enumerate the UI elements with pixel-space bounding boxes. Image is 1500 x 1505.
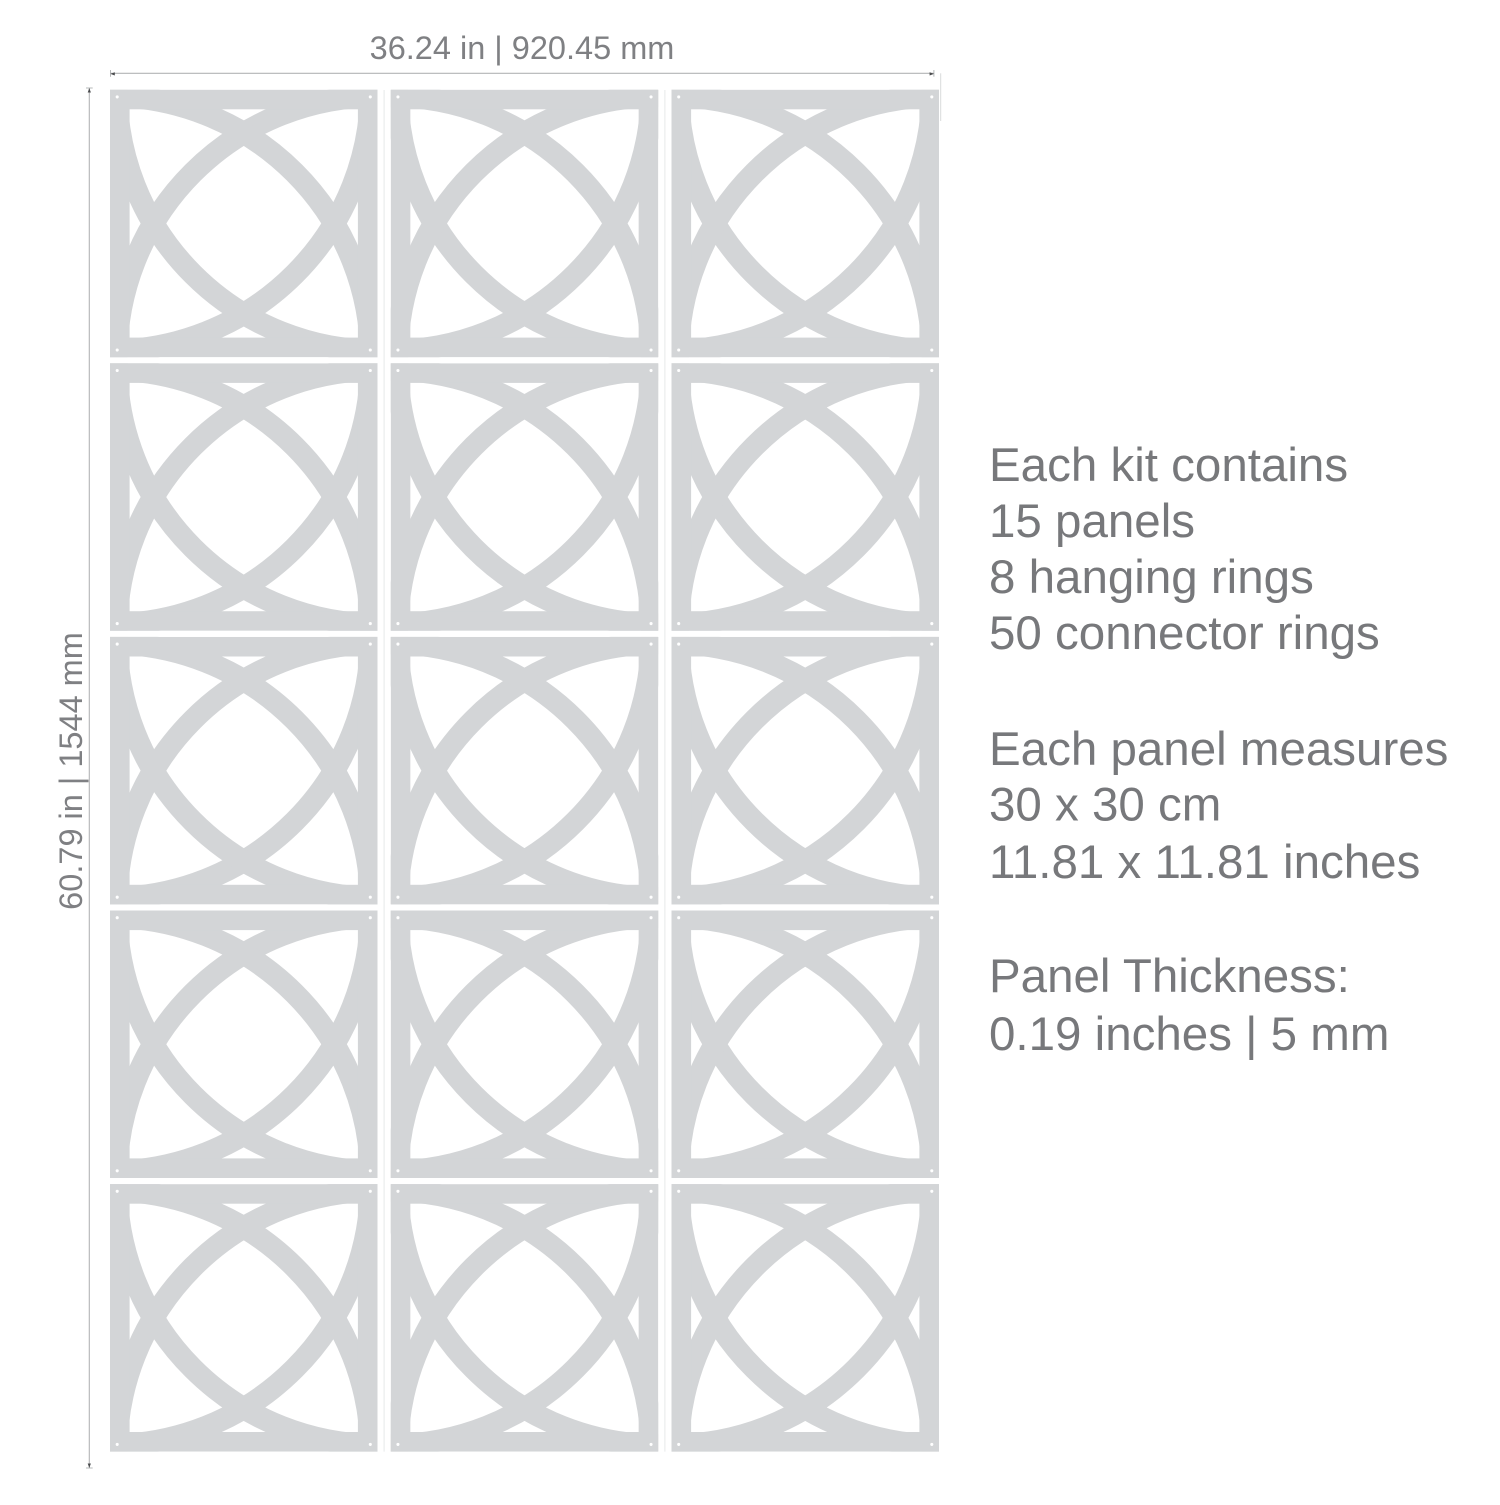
svg-text:30 x 30 cm: 30 x 30 cm xyxy=(989,779,1221,832)
svg-text:11.81 x 11.81 inches: 11.81 x 11.81 inches xyxy=(989,836,1420,889)
svg-text:50 connector rings: 50 connector rings xyxy=(989,607,1380,660)
svg-text:36.24 in | 920.45 mm: 36.24 in | 920.45 mm xyxy=(370,30,675,66)
svg-text:60.79 in | 1544 mm: 60.79 in | 1544 mm xyxy=(53,632,89,910)
svg-text:8 hanging rings: 8 hanging rings xyxy=(989,551,1314,604)
svg-text:15 panels: 15 panels xyxy=(989,495,1195,548)
svg-text:Each kit contains: Each kit contains xyxy=(989,439,1348,492)
svg-text:Each panel measures: Each panel measures xyxy=(989,723,1448,776)
svg-text:0.19 inches | 5 mm: 0.19 inches | 5 mm xyxy=(989,1008,1389,1061)
svg-text:Panel Thickness:: Panel Thickness: xyxy=(989,950,1350,1003)
